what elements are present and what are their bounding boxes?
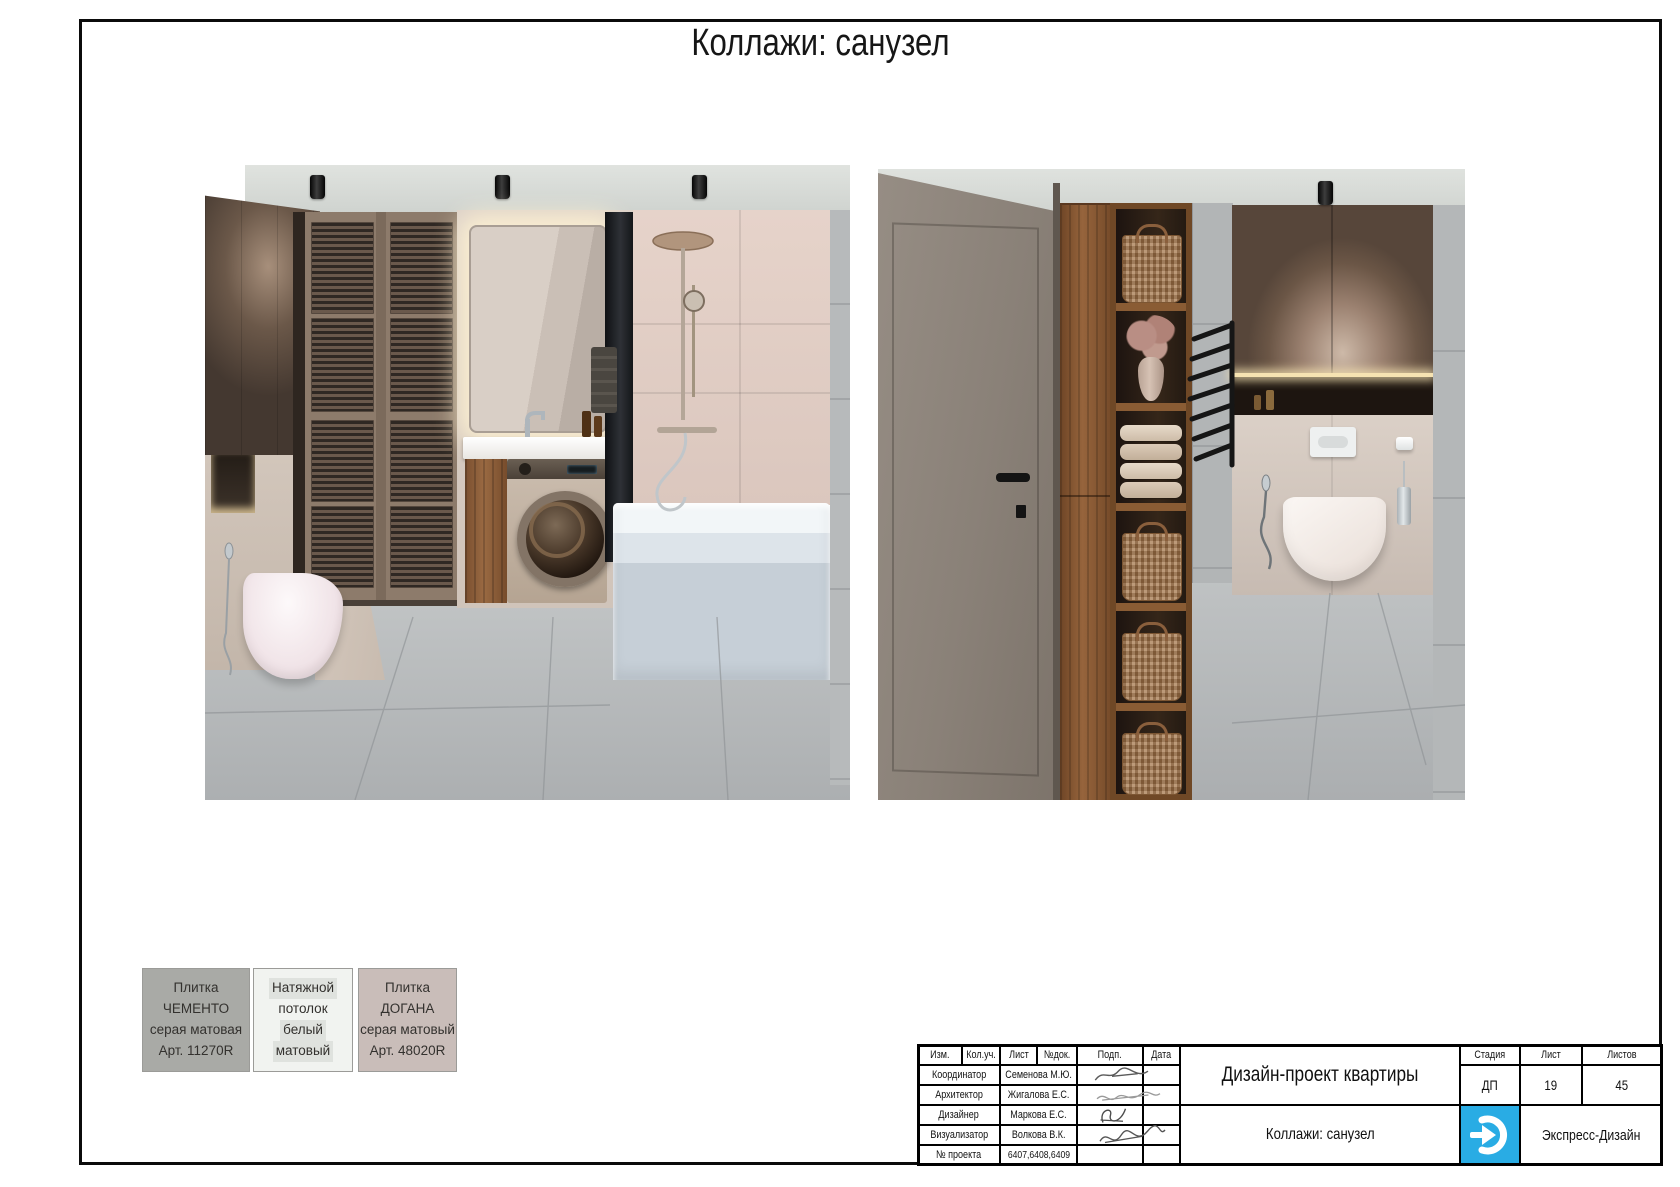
ceiling-spotlight-3 bbox=[692, 175, 707, 199]
wall-niche-backlit bbox=[211, 455, 255, 513]
page-title: Коллажи: санузел bbox=[540, 22, 1100, 65]
louver-panel bbox=[311, 420, 374, 502]
vanity-countertop-sink bbox=[463, 437, 613, 459]
louver-panel bbox=[311, 222, 374, 314]
stamp-date-cell bbox=[1143, 1145, 1180, 1165]
towel-stack bbox=[1120, 444, 1182, 460]
sheet-title: Коллажи: санузел bbox=[1266, 1126, 1375, 1144]
wardrobe-side-face bbox=[293, 212, 305, 600]
company-name: Экспресс-Дизайн bbox=[1542, 1127, 1641, 1144]
stamp-name-value: Семенова М.Ю. bbox=[1005, 1069, 1072, 1081]
stamp-role: Архитектор bbox=[918, 1085, 1000, 1105]
louver-panel bbox=[390, 420, 453, 502]
project-title: Дизайн-проект квартиры bbox=[1222, 1063, 1419, 1087]
stamp-sign-cell bbox=[1077, 1145, 1143, 1165]
backlit-mirror bbox=[469, 225, 607, 433]
ceiling bbox=[245, 165, 850, 213]
floor-tiles bbox=[1178, 580, 1465, 800]
collage-bathroom-1 bbox=[205, 165, 850, 800]
stamp-name: Волкова В.К. bbox=[1000, 1125, 1077, 1145]
stamp-name: Жигалова Е.С. bbox=[1000, 1085, 1077, 1105]
swatch-line: Плитка ЧЕМЕНТО bbox=[143, 978, 249, 1020]
stamp-header-label: Лист bbox=[1009, 1049, 1029, 1061]
design-project-sheet: Коллажи: санузел bbox=[0, 0, 1680, 1187]
stamp-name-value: 6407,6408,6409 bbox=[1007, 1149, 1069, 1161]
door-jamb bbox=[1053, 183, 1060, 800]
stamp-role-label: Дизайнер bbox=[939, 1109, 979, 1121]
towel-stack bbox=[1120, 463, 1182, 479]
washing-machine bbox=[507, 459, 607, 603]
swatch-line: Арт. 48020R bbox=[370, 1041, 446, 1062]
washer-knob bbox=[519, 463, 531, 475]
niche-bottle bbox=[1266, 390, 1274, 410]
toilet-paper-holder bbox=[1396, 437, 1413, 450]
swatch-line: серая матовый bbox=[360, 1020, 455, 1041]
sheets-header-cell: Листов bbox=[1582, 1045, 1662, 1065]
signature bbox=[1080, 1125, 1185, 1145]
dried-flowers bbox=[1126, 315, 1178, 361]
door-panel-moulding bbox=[892, 222, 1039, 776]
wicker-basket bbox=[1122, 633, 1182, 701]
louver-panel bbox=[390, 222, 453, 314]
sheet-number-cell: 19 bbox=[1520, 1065, 1582, 1105]
wicker-basket bbox=[1122, 533, 1182, 601]
wicker-basket bbox=[1122, 235, 1182, 303]
wood-cabinet-tall bbox=[1060, 203, 1110, 800]
ceiling-spotlight-2 bbox=[495, 175, 510, 199]
wc-backlit-niche bbox=[1232, 373, 1433, 415]
niche-bottle bbox=[1254, 395, 1261, 410]
wicker-basket bbox=[1122, 733, 1182, 795]
door-handle bbox=[996, 473, 1030, 482]
stamp-role: Координатор bbox=[918, 1065, 1000, 1085]
stamp-header-koluch: Кол.уч. bbox=[962, 1045, 1000, 1065]
collage-bathroom-2 bbox=[878, 165, 1465, 800]
open-shelf-unit bbox=[1110, 203, 1192, 800]
swatch-line: белый bbox=[280, 1020, 326, 1041]
page-title-text: Коллажи: санузел bbox=[691, 22, 949, 65]
swatch-stretch-ceiling: Натяжной потолок белый матовый bbox=[253, 968, 353, 1072]
sheets-total-cell: 45 bbox=[1582, 1065, 1662, 1105]
entry-door bbox=[878, 173, 1053, 800]
company-logo-cell bbox=[1460, 1105, 1520, 1165]
washer-door-drum bbox=[517, 491, 613, 587]
ceiling-spotlight-1 bbox=[310, 175, 325, 199]
wood-cabinet-seam bbox=[1060, 495, 1110, 497]
towel-stack bbox=[1120, 482, 1182, 498]
stage-header-cell: Стадия bbox=[1460, 1045, 1520, 1065]
side-tile-strip bbox=[830, 210, 850, 785]
shelf-board bbox=[1116, 403, 1186, 411]
louvered-wardrobe bbox=[305, 212, 457, 600]
stamp-header-izm: Изм. bbox=[918, 1045, 962, 1065]
swatch-line: матовый bbox=[273, 1041, 333, 1062]
stamp-header-label: Подп. bbox=[1098, 1049, 1122, 1061]
swatch-line: потолок bbox=[278, 999, 327, 1020]
hanging-towel bbox=[591, 347, 617, 413]
stamp-header-label: №док. bbox=[1044, 1049, 1070, 1061]
stamp-role-label: Координатор bbox=[932, 1069, 986, 1081]
stage-value: ДП bbox=[1482, 1077, 1498, 1093]
side-tile-strip bbox=[1433, 205, 1465, 800]
louver-panel bbox=[390, 318, 453, 412]
company-name-cell: Экспресс-Дизайн bbox=[1520, 1105, 1662, 1165]
ceiling-spotlight bbox=[1318, 181, 1333, 205]
swatch-tile-chemento: Плитка ЧЕМЕНТО серая матовая Арт. 11270R bbox=[142, 968, 250, 1072]
stamp-name: Семенова М.Ю. bbox=[1000, 1065, 1077, 1085]
shelf-board bbox=[1116, 303, 1186, 311]
stamp-header-ndok: №док. bbox=[1037, 1045, 1077, 1065]
sheets-label: Листов bbox=[1607, 1049, 1636, 1061]
louver-panel bbox=[311, 318, 374, 412]
sheet-label: Лист bbox=[1541, 1049, 1561, 1061]
wardrobe-center-stile bbox=[376, 212, 386, 600]
sheet-title-cell: Коллажи: санузел bbox=[1180, 1105, 1460, 1165]
stage-value-cell: ДП bbox=[1460, 1065, 1520, 1105]
shower-tile-wall bbox=[633, 210, 830, 505]
flush-buttons bbox=[1318, 436, 1348, 448]
wc-flush-plate bbox=[1310, 427, 1356, 457]
stamp-role-label: Визуализатор bbox=[930, 1129, 988, 1141]
express-design-logo-icon bbox=[1468, 1113, 1512, 1157]
title-block: Изм. Кол.уч. Лист №док. Подп. Дата Коорд… bbox=[918, 1045, 1662, 1165]
vanity-wood-panel bbox=[465, 459, 507, 603]
swatch-line: серая матовая bbox=[150, 1020, 242, 1041]
signature bbox=[1083, 1105, 1153, 1125]
door-lock bbox=[1016, 505, 1026, 518]
stamp-name-value: Жигалова Е.С. bbox=[1008, 1089, 1070, 1101]
stamp-header-list: Лист bbox=[1000, 1045, 1037, 1065]
bathtub bbox=[613, 503, 830, 680]
stamp-name-value: Маркова Е.С. bbox=[1010, 1109, 1066, 1121]
stamp-name: 6407,6408,6409 bbox=[1000, 1145, 1077, 1165]
swatch-line: Натяжной bbox=[269, 978, 337, 999]
stamp-header-label: Изм. bbox=[930, 1049, 949, 1061]
stamp-role: Дизайнер bbox=[918, 1105, 1000, 1125]
washer-display bbox=[567, 465, 597, 474]
stage-label: Стадия bbox=[1475, 1049, 1506, 1061]
swatch-line: Арт. 11270R bbox=[159, 1041, 234, 1062]
swatch-line: Плитка ДОГАНА bbox=[359, 978, 456, 1020]
stamp-name: Маркова Е.С. bbox=[1000, 1105, 1077, 1125]
sheets-total: 45 bbox=[1616, 1077, 1629, 1093]
louver-panel bbox=[390, 506, 453, 588]
stamp-header-label: Дата bbox=[1152, 1049, 1172, 1061]
swatch-tile-dogana: Плитка ДОГАНА серая матовый Арт. 48020R bbox=[358, 968, 457, 1072]
sheet-header-cell: Лист bbox=[1520, 1045, 1582, 1065]
tile-partition bbox=[1192, 203, 1233, 583]
shelf-board bbox=[1116, 503, 1186, 511]
sheet-number: 19 bbox=[1545, 1077, 1558, 1093]
stamp-role: № проекта bbox=[918, 1145, 1000, 1165]
toilet-brush-handle bbox=[1403, 461, 1405, 487]
project-title-cell: Дизайн-проект квартиры bbox=[1180, 1045, 1460, 1105]
shelf-board bbox=[1116, 703, 1186, 711]
stamp-name-value: Волкова В.К. bbox=[1012, 1129, 1066, 1141]
wc-upper-wood-cabinets bbox=[1232, 205, 1433, 373]
stamp-header-data: Дата bbox=[1143, 1045, 1180, 1065]
towel-stack bbox=[1120, 425, 1182, 441]
signature bbox=[1080, 1066, 1180, 1084]
niche-led-strip bbox=[1232, 373, 1433, 377]
stamp-role: Визуализатор bbox=[918, 1125, 1000, 1145]
toilet-brush bbox=[1397, 487, 1411, 525]
signature bbox=[1078, 1086, 1188, 1104]
stamp-role-label: № проекта bbox=[936, 1149, 981, 1161]
stamp-role-label: Архитектор bbox=[935, 1089, 983, 1101]
shelf-board bbox=[1116, 603, 1186, 611]
stamp-header-podp: Подп. bbox=[1077, 1045, 1143, 1065]
stamp-header-label: Кол.уч. bbox=[966, 1049, 996, 1061]
